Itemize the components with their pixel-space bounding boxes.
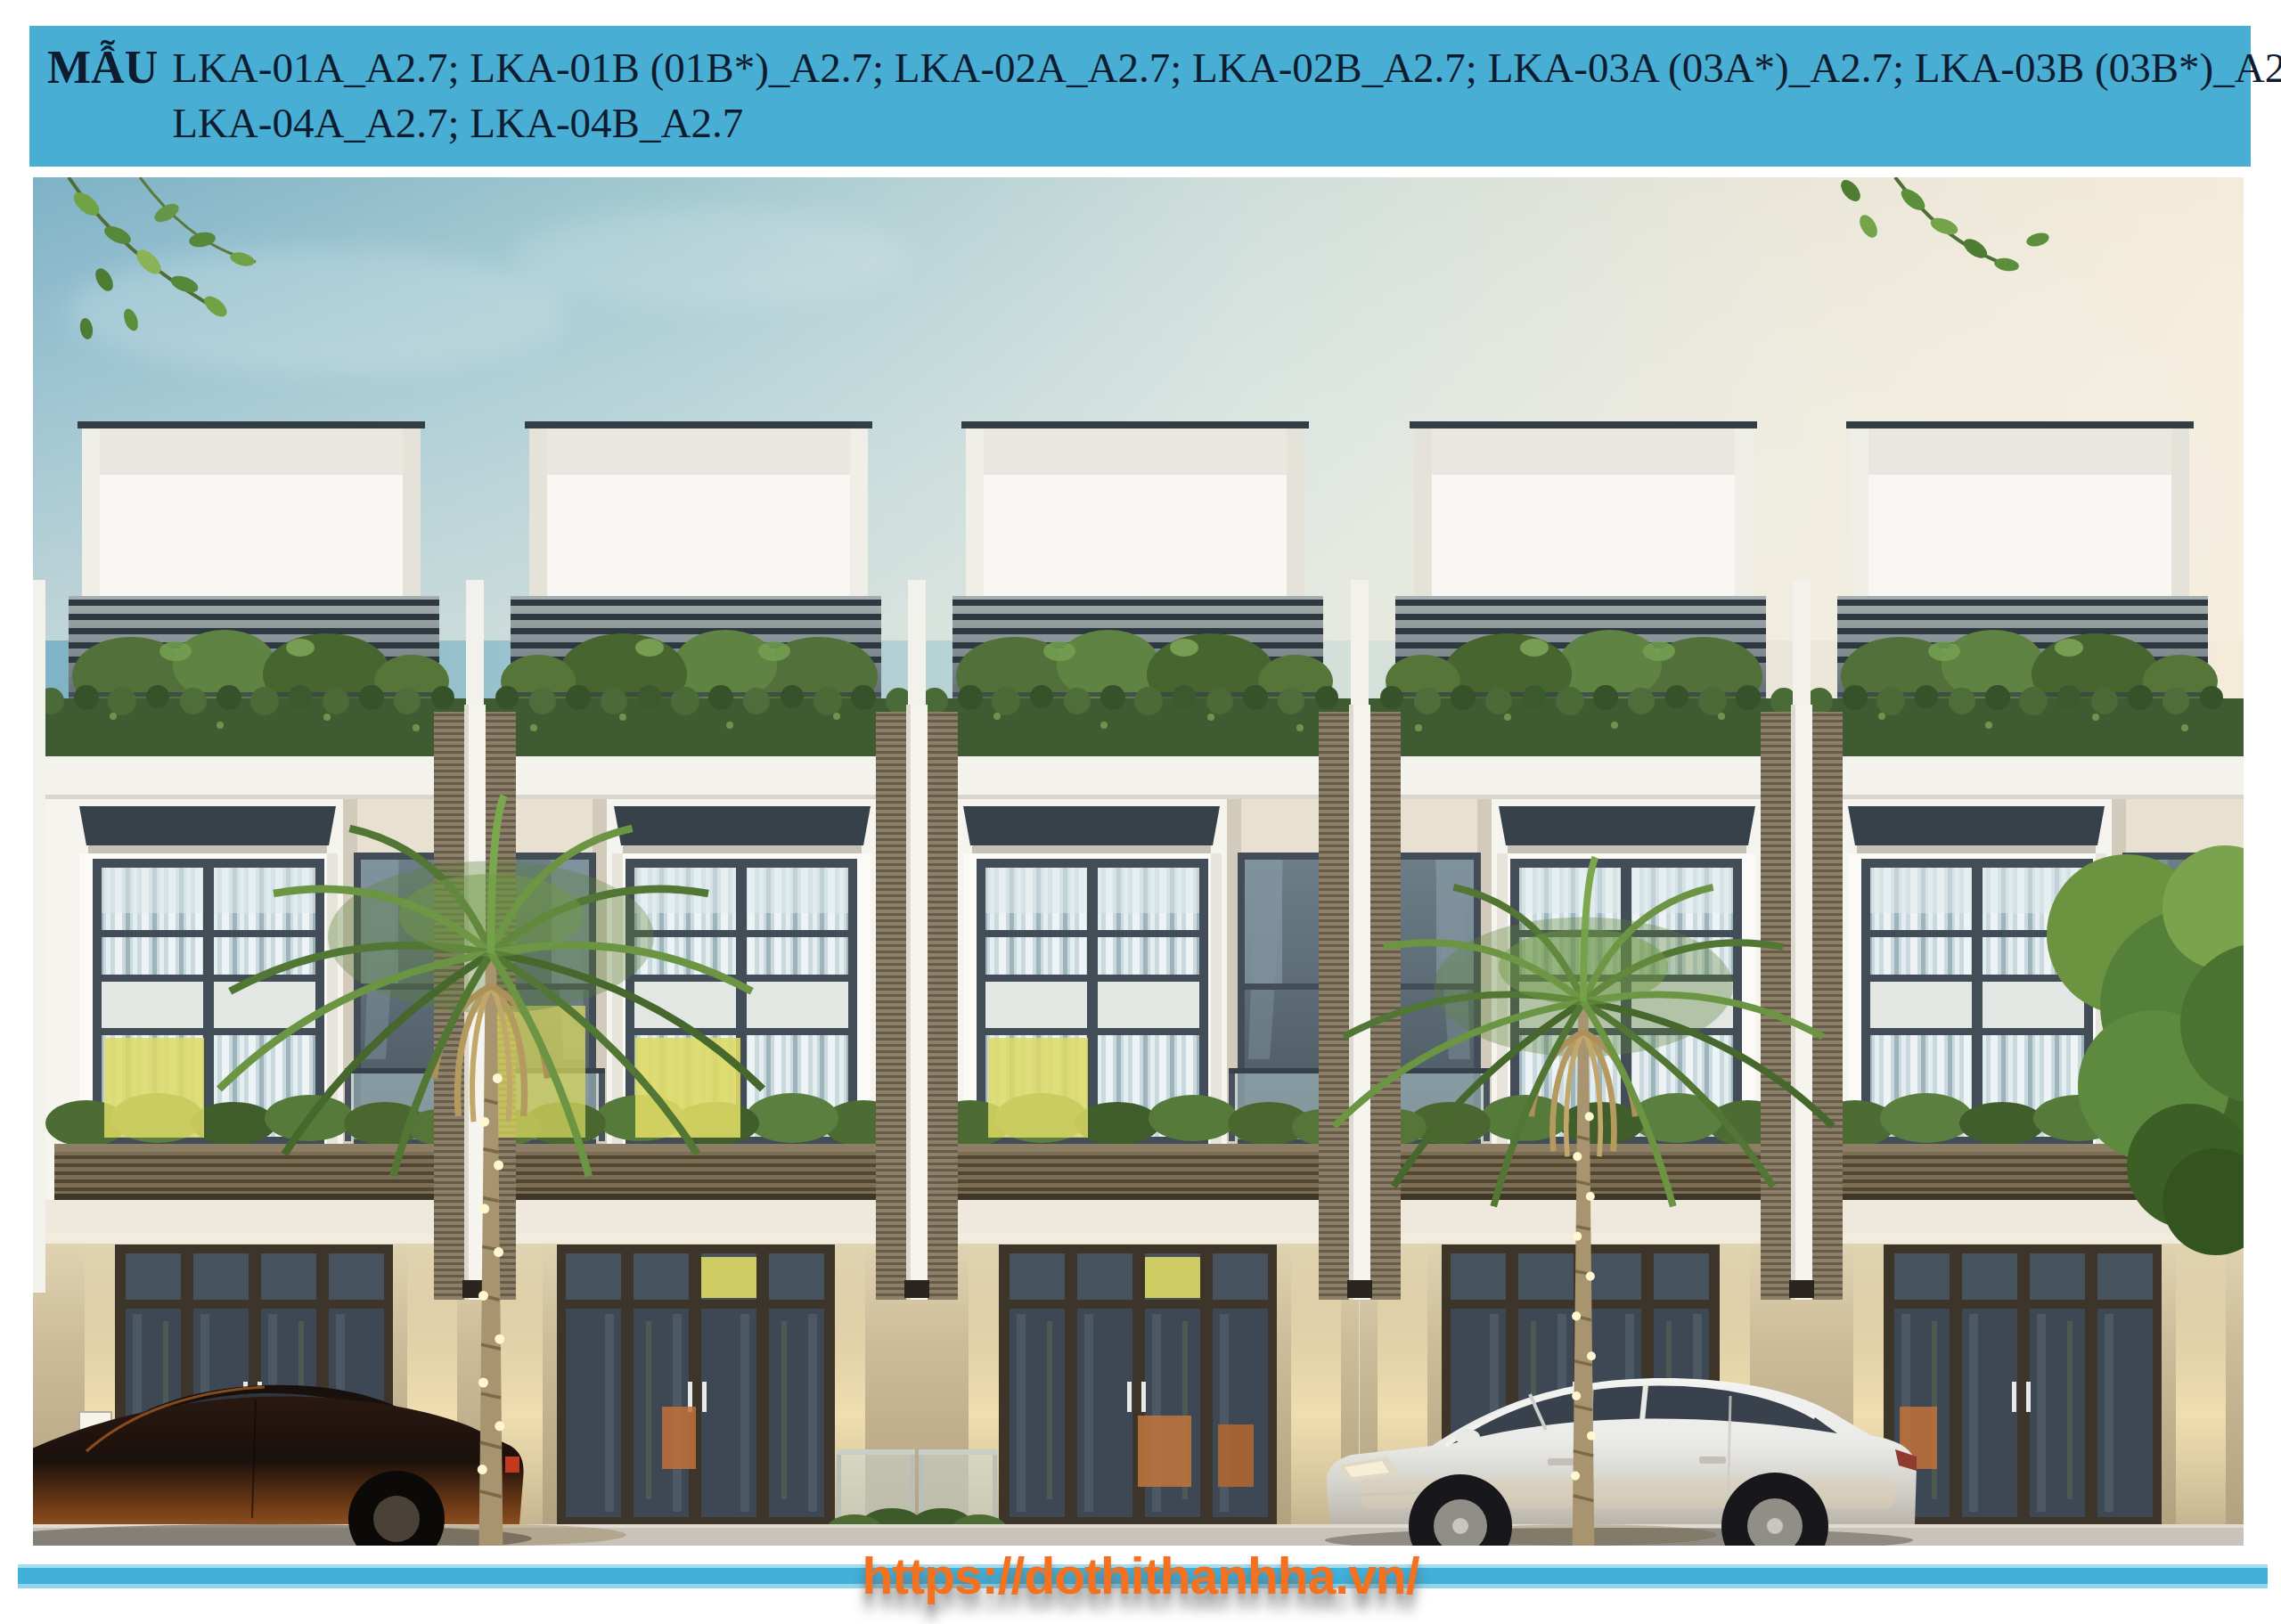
townhouse-unit-3 [912, 421, 1359, 1541]
header-model-line-1: LKA-01A_A2.7; LKA-01B (01B*)_A2.7; LKA-0… [172, 40, 2281, 95]
page-background: MẪU LKA-01A_A2.7; LKA-01B (01B*)_A2.7; L… [0, 0, 2281, 1624]
row-end-wall [33, 580, 45, 1293]
architectural-rendering [33, 177, 2244, 1546]
header-label: MẪU [47, 40, 158, 95]
watermark-url: https://dothithanhha.vn/ [0, 1546, 2281, 1605]
header-model-line-2: LKA-04A_A2.7; LKA-04B_A2.7 [172, 95, 2281, 151]
header-model-list: LKA-01A_A2.7; LKA-01B (01B*)_A2.7; LKA-0… [172, 40, 2281, 151]
header-banner: MẪU LKA-01A_A2.7; LKA-01B (01B*)_A2.7; L… [29, 26, 2251, 167]
rendering-svg [33, 177, 2244, 1546]
